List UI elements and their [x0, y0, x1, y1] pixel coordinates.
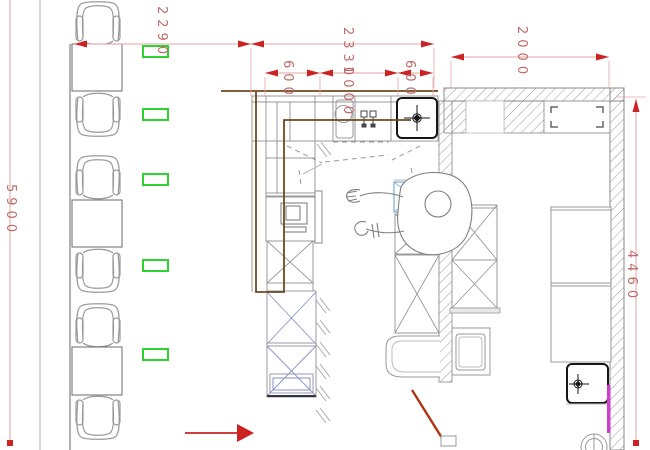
- cooktop-icon: [397, 98, 437, 138]
- person-figure: [346, 172, 472, 254]
- dining-table: [72, 44, 122, 91]
- door-fold-hatch: [316, 142, 331, 423]
- kitchen: [252, 96, 611, 450]
- dining-set-1: [72, 2, 122, 137]
- dimension-label: 4460: [624, 250, 639, 303]
- dimension-label: 2290: [154, 6, 169, 59]
- dining-set-2: [72, 156, 122, 293]
- dimension-label: 5900: [3, 184, 18, 237]
- rounded-counter: [386, 336, 440, 377]
- door-swing: [412, 390, 456, 446]
- appliance-icon: [452, 328, 490, 375]
- door-leaf: [441, 436, 456, 446]
- top-wall-hatched: [444, 88, 624, 101]
- dining-chair: [76, 93, 120, 136]
- socket-markers: [143, 46, 168, 360]
- dimension-label: 1000: [340, 66, 355, 119]
- dining-chair: [76, 396, 120, 439]
- dining-chair: [76, 156, 120, 199]
- right-room: [551, 207, 611, 450]
- floor-drain-icon: [581, 434, 607, 450]
- dining-chair: [76, 304, 120, 347]
- floor-plan-canvas: 2290 2330 1000 600 600 2000 5900 4460: [0, 0, 650, 450]
- magenta-pipe: [607, 385, 611, 433]
- right-wall-hatched: [610, 88, 624, 450]
- wall-niche: [466, 101, 504, 133]
- direction-arrow-icon: [185, 424, 254, 442]
- socket-marker: [143, 174, 168, 185]
- wall-pier: [504, 101, 544, 133]
- seating-area: [40, 0, 168, 450]
- dining-set-3: [72, 304, 122, 440]
- microwave-counter: [266, 164, 322, 243]
- dimension-label: 600: [402, 60, 417, 100]
- window: [544, 101, 610, 133]
- dimension-label: 600: [280, 60, 295, 100]
- dining-table: [72, 200, 122, 247]
- socket-marker: [143, 109, 168, 120]
- side-counter: [551, 207, 611, 362]
- dimension-label: 2000: [514, 26, 529, 79]
- socket-marker: [143, 349, 168, 360]
- hood-dashed-lines: [287, 142, 420, 185]
- dark-square-unit: [567, 364, 608, 403]
- x-cabinet-left: [267, 241, 313, 291]
- socket-marker: [143, 260, 168, 271]
- blue-x-cabinet: [267, 291, 316, 397]
- dining-chair: [76, 2, 120, 45]
- dining-chair: [76, 249, 120, 292]
- dining-table: [72, 347, 122, 395]
- person-head: [425, 191, 451, 217]
